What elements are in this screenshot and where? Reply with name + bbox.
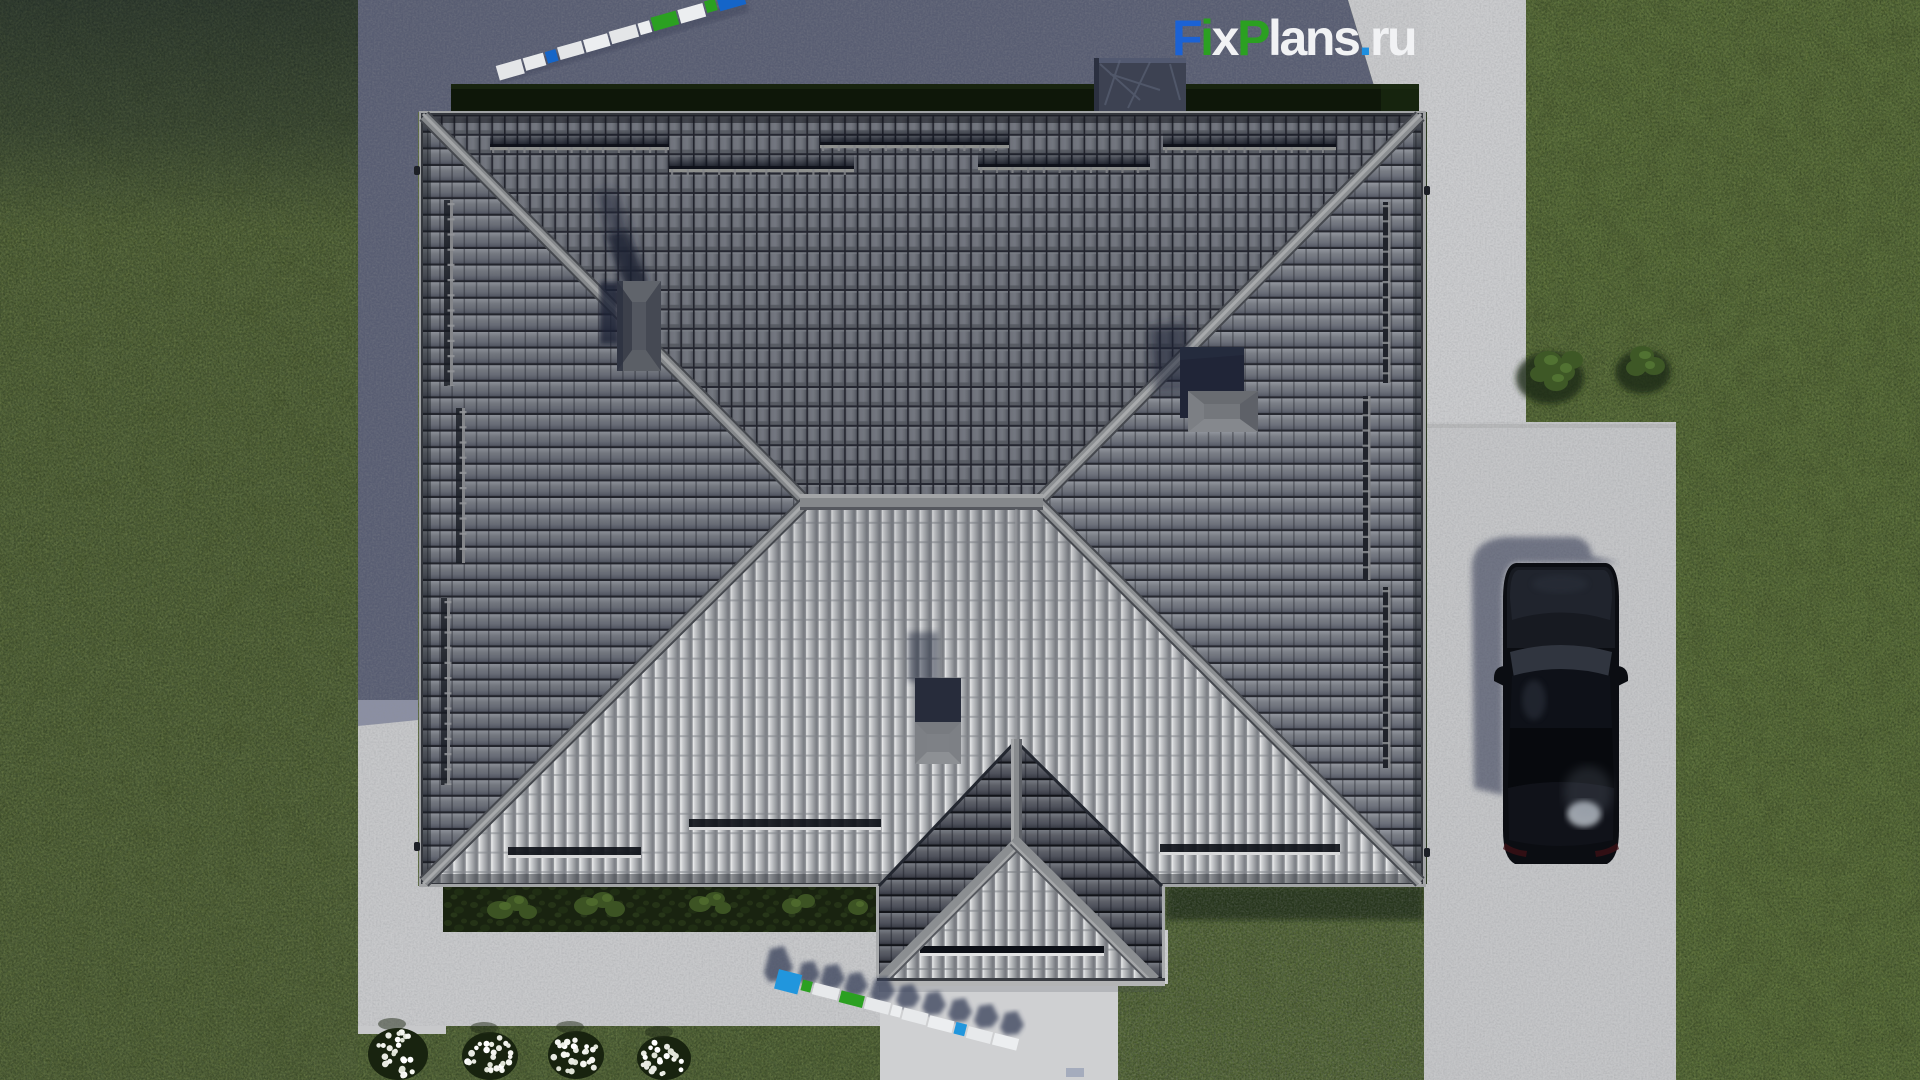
svg-text:FixPlans.ru: FixPlans.ru bbox=[1172, 10, 1415, 66]
